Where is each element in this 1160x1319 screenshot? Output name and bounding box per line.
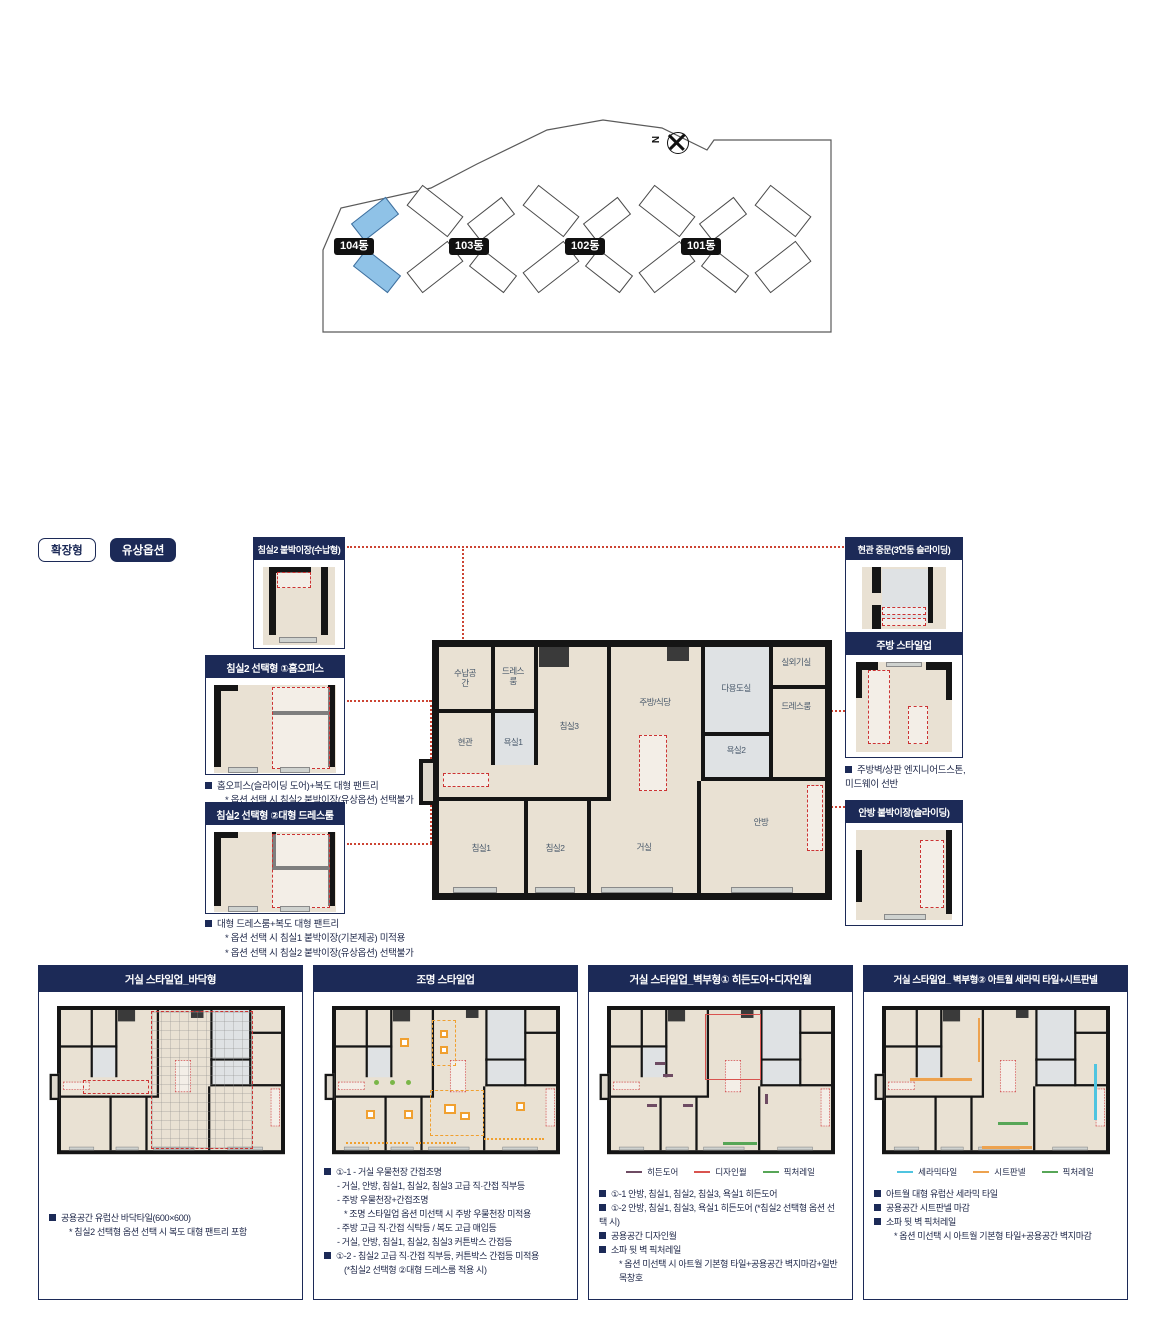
panel-title: 거실 스타일업_ 벽부형② 아트월 세라믹 타일+시트판넬 (864, 966, 1127, 992)
callout-notes: 주방벽/상판 엔지니어드스톤, 미드웨이 선반 (845, 764, 969, 793)
leader-line (347, 700, 431, 702)
building-outline (585, 249, 633, 293)
room-label-utility: 다용도실 (721, 684, 750, 694)
building-label-101: 101동 (681, 238, 721, 255)
building-label-104: 104동 (334, 238, 374, 255)
panel-title: 거실 스타일업_바닥형 (39, 966, 302, 992)
downlight (390, 1080, 395, 1085)
utility-tile (1037, 1010, 1073, 1058)
room-label-storage: 수납공간 (454, 669, 476, 689)
room-label-bath2: 욕실2 (727, 746, 746, 756)
badge-paid-option: 유상옵션 (110, 538, 176, 562)
callout-title: 침실2 선택형 ①홈오피스 (206, 656, 344, 678)
leader-line (347, 546, 847, 548)
building-outline (755, 241, 812, 294)
entry-gate-option (888, 1082, 914, 1090)
callout-title: 침실2 선택형 ②대형 드레스룸 (206, 803, 344, 825)
note-line: 주방벽/상판 엔지니어드스톤, 미드웨이 선반 (845, 764, 969, 793)
bath1-tile (92, 1048, 114, 1078)
compass-icon (667, 132, 689, 154)
main-floor-plan: 수납공간 드레스룸 현관 욕실1 침실3 주방/식당 다용도실 실외기실 드레스… (432, 640, 832, 900)
bath1-tile (917, 1048, 939, 1078)
note-line: * 옵션 선택 시 침실2 붙박이장(유상옵션) 선택불가 (205, 947, 435, 961)
ceramic-tile-mark (1094, 1064, 1097, 1120)
design-wall-zone (705, 1014, 761, 1080)
picture-rail-mark (998, 1122, 1028, 1125)
callout-title: 침실2 붙박이장(수납형) (254, 538, 344, 560)
curtain-box-light (416, 1142, 456, 1144)
room-label-kitchen: 주방/식당 (639, 698, 670, 708)
panel-title: 거실 스타일업_벽부형① 히든도어+디자인월 (589, 966, 852, 992)
wardrobe-option (1095, 1089, 1104, 1127)
panel-lighting-styleup: 조명 스타일업 (313, 965, 578, 1300)
bath2-tile (487, 1061, 523, 1084)
light-fixture (440, 1030, 448, 1038)
stair-block (392, 1010, 409, 1021)
entrance-door (324, 1074, 334, 1100)
callout-title: 안방 붙박이장(슬라이딩) (846, 801, 962, 823)
entrance-door (49, 1074, 59, 1100)
entrance-door (874, 1074, 884, 1100)
building-outline (583, 197, 631, 241)
duct-block (667, 647, 689, 661)
callout-bed2-homeoffice: 침실2 선택형 ①홈오피스 (205, 655, 345, 775)
entry-gate-option (443, 773, 489, 787)
curtain-box-light (346, 1142, 408, 1144)
kitchen-coffered-ceiling (432, 1020, 456, 1066)
downlight (374, 1080, 379, 1085)
kitchen-island-option (639, 735, 667, 791)
wardrobe-option (545, 1089, 554, 1127)
picture-rail-mark (723, 1142, 757, 1145)
light-fixture (400, 1038, 409, 1047)
callout-thumb (214, 685, 336, 773)
building-label-102: 102동 (565, 238, 605, 255)
building-outline (699, 197, 747, 241)
stair-block (117, 1010, 134, 1021)
light-fixture (366, 1110, 375, 1119)
room-label-bed2: 침실2 (546, 844, 565, 854)
panel-title: 조명 스타일업 (314, 966, 577, 992)
callout-title: 현관 중문(3연동 슬라이딩) (846, 538, 962, 560)
utility-tile (762, 1010, 798, 1058)
wardrobe-option (820, 1089, 829, 1127)
stair-block (539, 647, 569, 667)
curtain-box-light (484, 1138, 544, 1140)
callout-master-wardrobe: 안방 붙박이장(슬라이딩) (845, 800, 963, 926)
building-label-103: 103동 (449, 238, 489, 255)
compass-north-label: N (651, 136, 662, 143)
building-highlighted (353, 249, 401, 293)
building-outline (467, 197, 515, 241)
room-label-living: 거실 (637, 843, 652, 853)
light-fixture (460, 1112, 470, 1120)
light-fixture (440, 1046, 448, 1054)
panel-floor-styleup: 거실 스타일업_바닥형 (38, 965, 303, 1300)
hidden-door-mark (663, 1074, 673, 1077)
callout-thumb (263, 567, 335, 645)
duct-block (465, 1010, 478, 1018)
room-label-ac-unit: 실외기실 (781, 658, 810, 668)
room-label-dress-right: 드레스룸 (781, 702, 810, 712)
entrance-door (599, 1074, 609, 1100)
bath1-tile (367, 1048, 389, 1078)
light-fixture (516, 1102, 525, 1111)
hidden-door-mark (647, 1104, 657, 1107)
floor-tile-zone (151, 1011, 253, 1149)
downlight (406, 1080, 411, 1085)
wardrobe-option (270, 1089, 279, 1127)
room-label-master: 안방 (754, 818, 769, 828)
note-line: 홈오피스(슬라이딩 도어)+복도 대형 팬트리 (205, 780, 425, 794)
corridor-pantry-zone (83, 1080, 149, 1094)
bath2-tile (762, 1061, 798, 1084)
callout-entry-gate: 현관 중문(3연동 슬라이딩) (845, 537, 963, 635)
building-outline (469, 249, 517, 293)
callout-thumb (214, 832, 336, 912)
light-fixture (404, 1110, 413, 1119)
building-highlighted (351, 197, 399, 241)
callout-notes: 대형 드레스룸+복도 대형 팬트리* 옵션 선택 시 침실1 붙박이장(기본제공… (205, 918, 435, 961)
sheet-panel-mark (910, 1078, 972, 1081)
bath2-tile (705, 736, 769, 777)
room-label-entry: 현관 (458, 738, 473, 748)
room-label-dress-left: 드레스룸 (502, 667, 524, 687)
stair-block (667, 1010, 684, 1021)
duct-block (1015, 1010, 1028, 1018)
badge-expansion-type: 확장형 (38, 538, 96, 562)
utility-tile (487, 1010, 523, 1058)
note-line: 대형 드레스룸+복도 대형 팬트리 (205, 918, 435, 932)
living-coffered-ceiling (430, 1090, 484, 1136)
panel-plan: 수납공간 드레스룸 현관 욕실1 침실3 주방/식당 다용도실 실외기실 드레스… (332, 1006, 560, 1156)
entry-gate-option (338, 1082, 364, 1090)
callout-bed2-wardrobe: 침실2 붙박이장(수납형) (253, 537, 345, 649)
site-plan: N 104동 103동 102동 (315, 112, 840, 340)
stair-block (942, 1010, 959, 1021)
callout-thumb (856, 830, 952, 920)
hidden-door-mark (683, 1104, 693, 1107)
entry-gate-option (613, 1082, 639, 1090)
sheet-panel-mark (978, 1018, 981, 1062)
callout-kitchen-styleup: 주방 스타일업 (845, 632, 963, 758)
callout-thumb (856, 662, 952, 752)
callout-bed2-dressroom: 침실2 선택형 ②대형 드레스룸 (205, 802, 345, 914)
hidden-door-mark (655, 1062, 665, 1065)
room-label-bath1: 욕실1 (504, 738, 523, 748)
room-label-bed1: 침실1 (472, 844, 491, 854)
kitchen-island-option (999, 1060, 1015, 1092)
brochure-page: N 104동 103동 102동 (0, 0, 1160, 1319)
note-line: * 옵션 선택 시 침실1 붙박이장(기본제공) 미적용 (205, 932, 435, 946)
wardrobe-option (807, 785, 823, 851)
hidden-door-mark (765, 1094, 768, 1104)
panel-plan: 수납공간 드레스룸 현관 욕실1 침실3 주방/식당 다용도실 실외기실 드레스… (57, 1006, 285, 1156)
building-outline (701, 249, 749, 293)
callout-title: 주방 스타일업 (846, 633, 962, 655)
light-fixture (444, 1104, 456, 1114)
panel-plan: 수납공간 드레스룸 현관 욕실1 침실3 주방/식당 다용도실 실외기실 드레스… (607, 1006, 835, 1156)
callout-thumb (862, 567, 946, 629)
panel-wall-styleup-2: 거실 스타일업_ 벽부형② 아트월 세라믹 타일+시트판넬 (863, 965, 1128, 1300)
panel-plan: 수납공간 드레스룸 현관 욕실1 침실3 주방/식당 다용도실 실외기실 드레스… (882, 1006, 1110, 1156)
sheet-panel-mark (982, 1146, 1032, 1149)
panel-wall-styleup-1: 거실 스타일업_벽부형① 히든도어+디자인월 (588, 965, 853, 1300)
room-label-bed3: 침실3 (560, 722, 579, 732)
bath2-tile (1037, 1061, 1073, 1084)
